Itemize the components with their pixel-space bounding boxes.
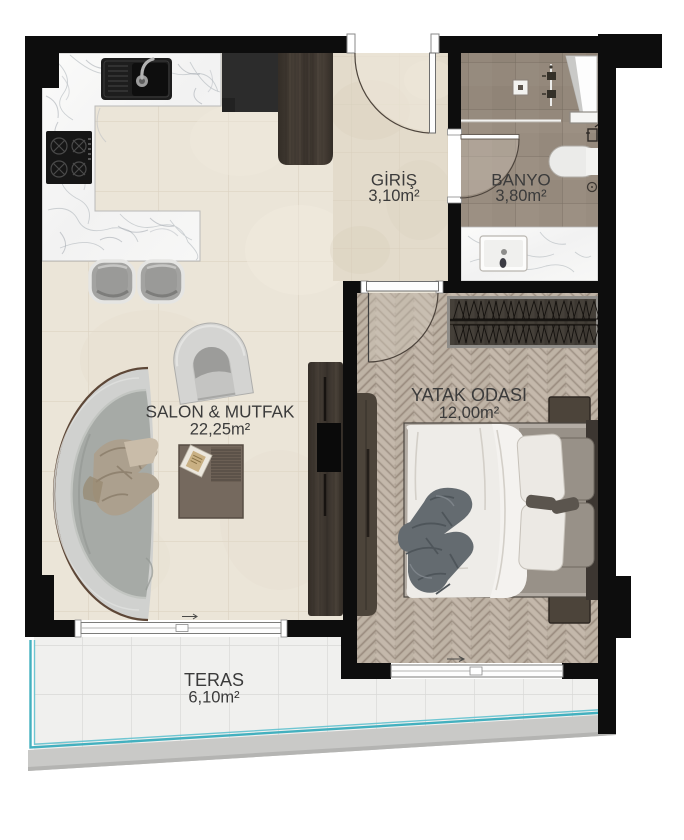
svg-text:SALON & MUTFAK: SALON & MUTFAK	[146, 402, 296, 422]
svg-text:TERAS: TERAS	[184, 670, 244, 690]
svg-text:12,00m²: 12,00m²	[439, 404, 500, 422]
svg-text:3,80m²: 3,80m²	[495, 187, 547, 205]
svg-text:YATAK ODASI: YATAK ODASI	[411, 385, 527, 405]
svg-text:22,25m²: 22,25m²	[190, 421, 251, 439]
svg-text:6,10m²: 6,10m²	[188, 689, 240, 707]
svg-text:3,10m²: 3,10m²	[368, 187, 420, 205]
